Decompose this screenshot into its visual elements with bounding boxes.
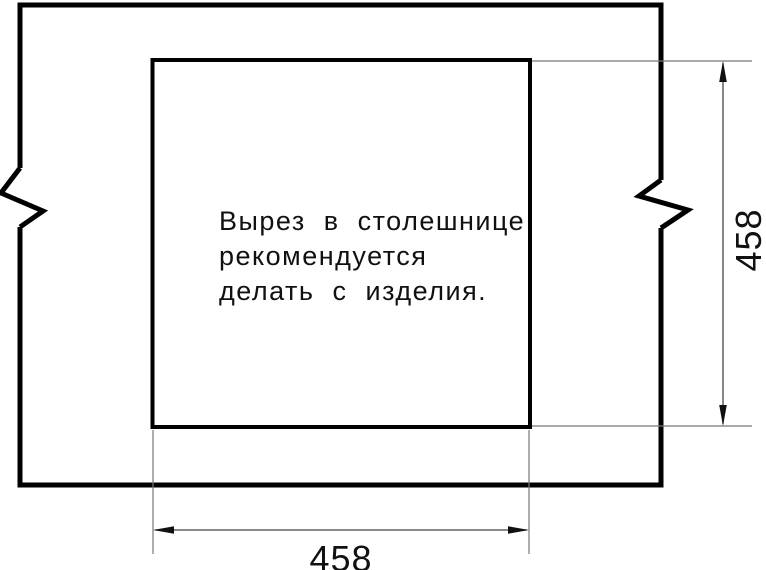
width-dimension-value: 458: [309, 538, 372, 570]
break-line-left-icon: [1, 168, 43, 227]
arrow-up-icon: [719, 61, 727, 82]
note-line-3: делать с изделия.: [219, 274, 509, 309]
arrow-right-icon: [508, 526, 529, 534]
note-line-2: рекомендуется: [219, 239, 509, 274]
arrow-left-icon: [153, 526, 174, 534]
note-line-1: Вырез в столешнице: [219, 204, 509, 239]
break-line-right-icon: [639, 180, 688, 228]
technical-drawing: Вырез в столешнице рекомендуется делать …: [0, 0, 766, 570]
arrow-down-icon: [719, 405, 727, 426]
height-dimension-value: 458: [728, 208, 766, 271]
cutout-note: Вырез в столешнице рекомендуется делать …: [219, 204, 509, 309]
